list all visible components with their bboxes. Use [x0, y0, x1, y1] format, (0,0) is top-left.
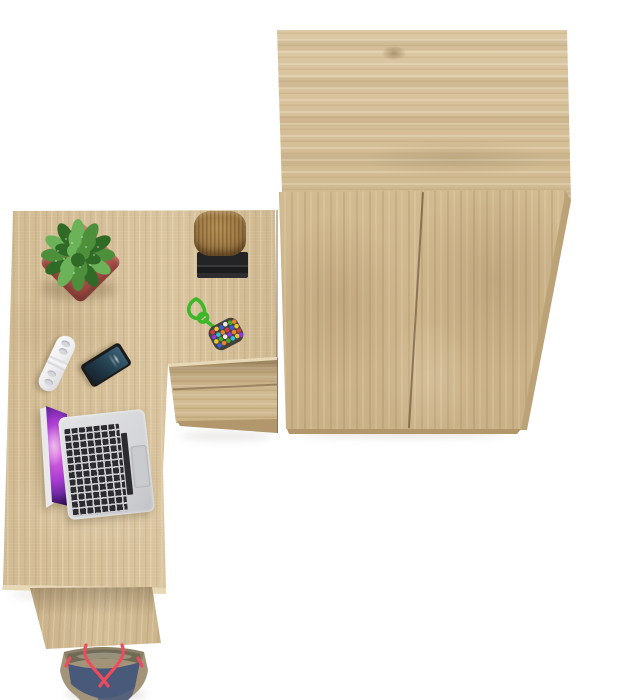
remote-button — [58, 347, 69, 356]
tote-bag — [56, 640, 152, 700]
render-stage — [0, 0, 643, 700]
laptop-body — [58, 409, 155, 521]
remote-button — [43, 378, 54, 387]
laptop-keyboard — [64, 423, 128, 516]
drawer-floor-shadow — [180, 432, 272, 440]
drawer-side-seam — [277, 358, 279, 433]
keychain — [183, 290, 255, 354]
plant-foliage — [28, 203, 128, 303]
laptop-trackpad — [130, 445, 150, 488]
remote-button — [46, 369, 57, 378]
remote-band — [46, 355, 68, 371]
wardrobe-plinth — [286, 428, 522, 435]
stump-log — [194, 211, 246, 256]
wardrobe-top-panel — [276, 29, 572, 202]
